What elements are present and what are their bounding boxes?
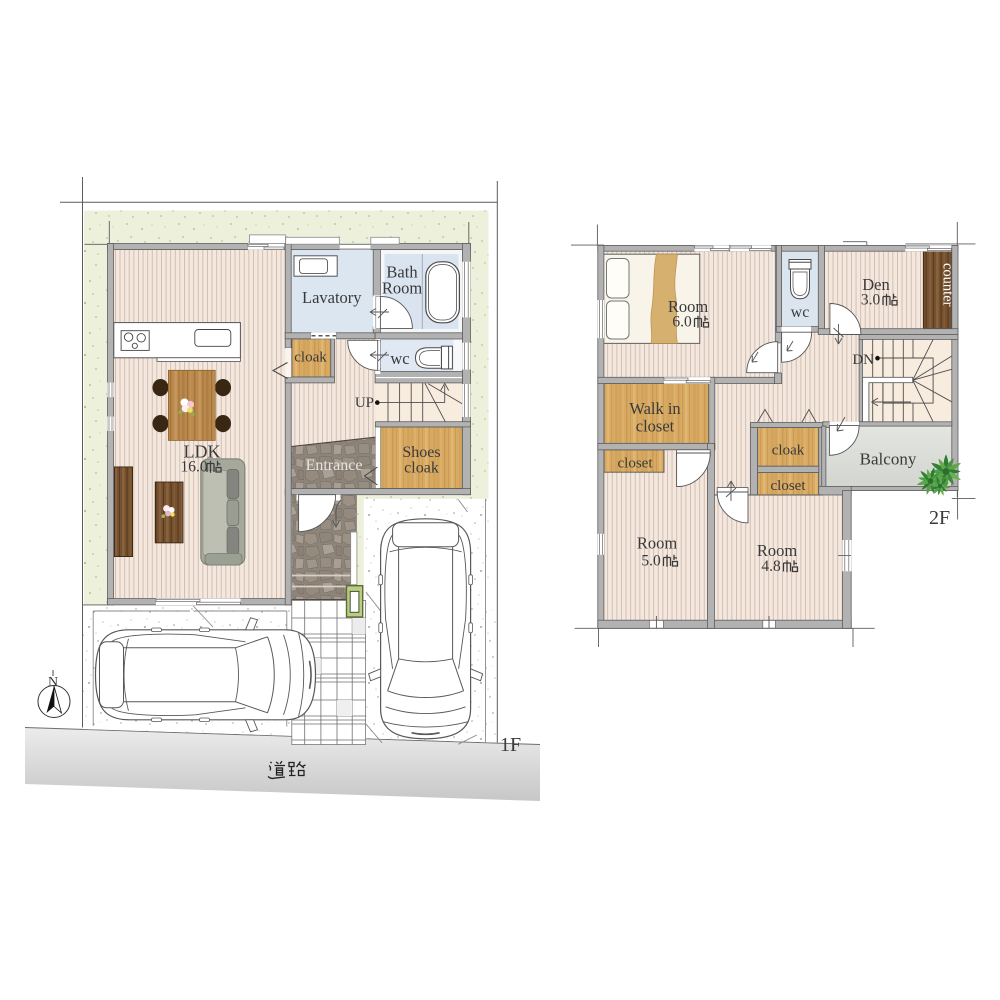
svg-text:Walk in: Walk in (629, 399, 680, 418)
svg-text:DN: DN (852, 352, 874, 368)
svg-text:1F: 1F (500, 734, 521, 756)
svg-text:2F: 2F (929, 507, 950, 529)
svg-text:closet: closet (636, 417, 675, 436)
svg-text:Lavatory: Lavatory (302, 288, 362, 307)
svg-text:Room: Room (382, 279, 423, 298)
svg-text:closet: closet (618, 456, 654, 472)
svg-text:cloak: cloak (294, 350, 327, 366)
svg-text:4.8: 4.8 (761, 558, 781, 575)
svg-text:UP: UP (355, 395, 374, 411)
svg-text:closet: closet (771, 478, 807, 494)
svg-text:wc: wc (390, 349, 409, 368)
svg-text:3.0: 3.0 (861, 292, 881, 309)
svg-text:N: N (48, 675, 58, 690)
svg-text:Shoes: Shoes (402, 444, 440, 461)
svg-text:Entrance: Entrance (306, 457, 363, 474)
svg-text:cloak: cloak (772, 443, 805, 459)
svg-text:cloak: cloak (404, 460, 439, 477)
svg-text:16.0: 16.0 (180, 459, 207, 476)
svg-text:counter: counter (940, 263, 956, 307)
svg-text:wc: wc (791, 304, 810, 321)
svg-text:Balcony: Balcony (860, 450, 917, 469)
svg-text:5.0: 5.0 (641, 553, 661, 570)
svg-text:6.0: 6.0 (672, 314, 692, 331)
svg-text:Room: Room (637, 534, 678, 553)
